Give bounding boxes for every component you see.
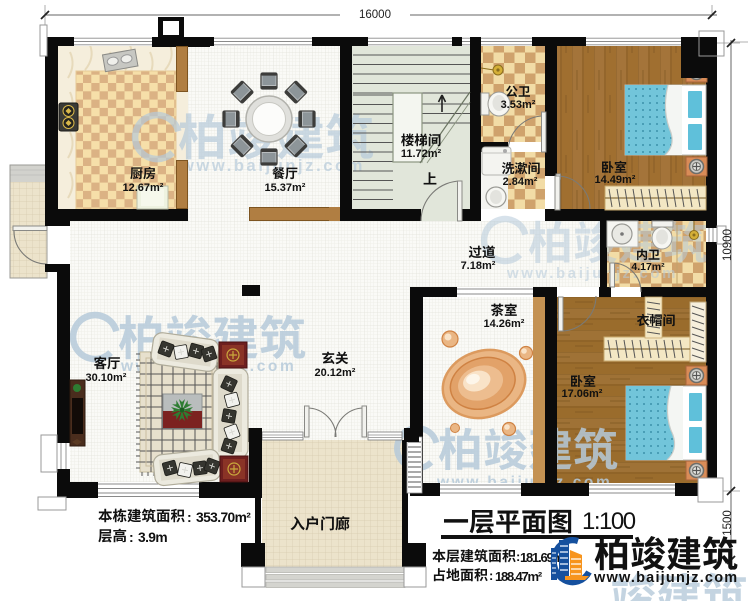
svg-text:3.9m: 3.9m: [138, 530, 167, 545]
svg-text:1:100: 1:100: [582, 508, 636, 535]
svg-text:353.70m²: 353.70m²: [196, 510, 251, 525]
svg-text::: :: [129, 529, 134, 545]
svg-text:4.17m²: 4.17m²: [631, 261, 665, 273]
svg-text:16000: 16000: [359, 9, 391, 21]
svg-text:15.37m²: 15.37m²: [265, 182, 306, 194]
svg-text:2.84m²: 2.84m²: [503, 176, 538, 188]
svg-text:7.18m²: 7.18m²: [461, 260, 496, 272]
svg-text:11.72m²: 11.72m²: [401, 148, 442, 160]
svg-text::: :: [187, 509, 192, 525]
svg-text:17.06m²: 17.06m²: [562, 388, 603, 400]
svg-text:1500: 1500: [722, 510, 734, 536]
svg-text:10900: 10900: [722, 229, 734, 261]
svg-text:www.baijunjz.com: www.baijunjz.com: [593, 570, 738, 586]
svg-text:30.10m²: 30.10m²: [86, 372, 127, 384]
svg-text:14.49m²: 14.49m²: [595, 174, 636, 186]
svg-text:188.47m²: 188.47m²: [495, 569, 543, 584]
svg-text:14.26m²: 14.26m²: [484, 318, 525, 330]
svg-text:20.12m²: 20.12m²: [315, 367, 356, 379]
svg-text:12.67m²: 12.67m²: [123, 182, 164, 194]
svg-text:3.53m²: 3.53m²: [501, 99, 536, 111]
svg-text::: :: [489, 568, 493, 583]
